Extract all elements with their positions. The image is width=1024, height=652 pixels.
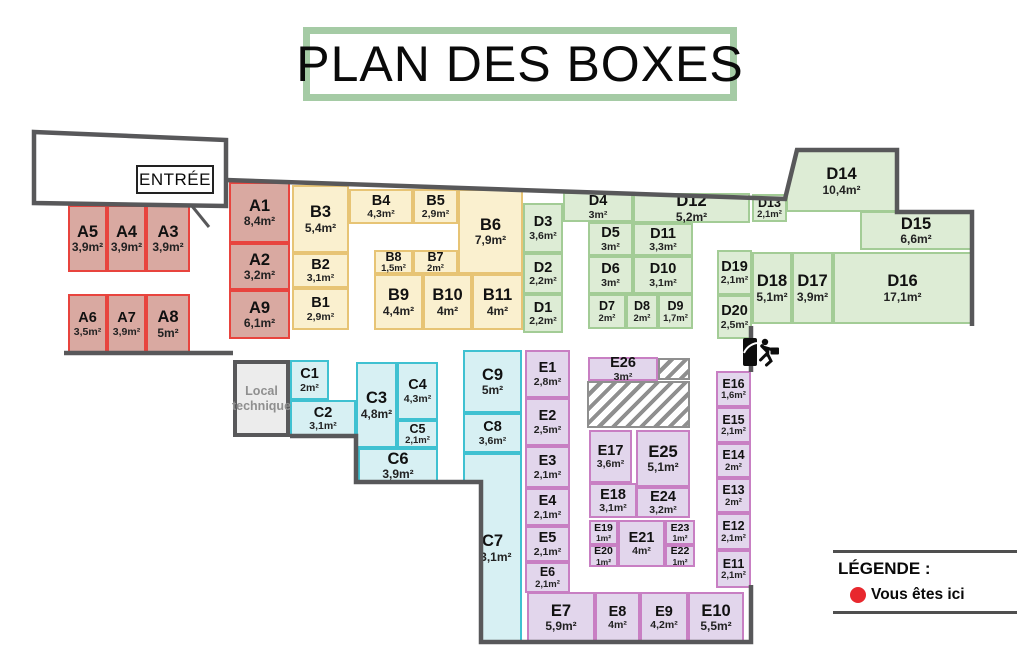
box-area: 17,1m² — [883, 291, 921, 303]
box-id: D14 — [826, 166, 856, 183]
entrance-label-text: ENTRÉE — [139, 170, 211, 190]
box-area: 1,7m² — [663, 314, 688, 324]
box-id: D7 — [599, 300, 615, 313]
box-A1: A18,4m² — [229, 182, 290, 243]
box-E19: E191m² — [589, 520, 618, 545]
box-area: 3m² — [601, 242, 620, 253]
box-id: C5 — [410, 423, 426, 436]
box-id: E13 — [722, 484, 744, 497]
box-D1: D12,2m² — [523, 294, 563, 333]
box-A5: A53,9m² — [68, 205, 107, 272]
box-area: 3,1m² — [307, 273, 334, 284]
box-id: A8 — [157, 309, 178, 326]
box-C5: C52,1m² — [397, 420, 438, 448]
box-id: B8 — [386, 251, 402, 264]
legend: LÉGENDE : Vous êtes ici — [828, 550, 1020, 622]
box-id: B5 — [426, 194, 445, 209]
box-B6: B67,9m² — [458, 189, 523, 274]
box-id: A2 — [249, 252, 270, 269]
box-B11: B114m² — [472, 274, 523, 330]
box-id: A3 — [157, 224, 178, 241]
you-are-here-dot-icon — [850, 587, 866, 603]
box-area: 2,2m² — [529, 276, 556, 287]
box-D12: D125,2m² — [633, 193, 750, 223]
box-E12: E122,1m² — [716, 513, 751, 550]
box-id: D20 — [721, 304, 748, 319]
box-B3: B35,4m² — [292, 185, 349, 253]
box-D16: D1617,1m² — [833, 252, 972, 324]
box-B4: B44,3m² — [349, 189, 413, 224]
box-D15: D156,6m² — [860, 211, 972, 250]
box-D11: D113,3m² — [633, 223, 693, 256]
box-A8: A85m² — [146, 294, 190, 354]
box-area: 2,1m² — [534, 470, 561, 481]
box-id: E23 — [671, 523, 690, 534]
box-id: E1 — [539, 361, 557, 376]
box-area: 3,9m² — [111, 241, 142, 253]
box-C4: C44,3m² — [397, 362, 438, 420]
box-id: D5 — [601, 226, 620, 241]
box-D3: D33,6m² — [523, 203, 563, 253]
box-C3: C34,8m² — [356, 362, 397, 448]
box-id: E7 — [551, 603, 571, 620]
box-E9: E94,2m² — [640, 592, 688, 643]
box-area: 3,6m² — [597, 459, 624, 470]
hatched-area — [658, 358, 690, 380]
box-id: A1 — [249, 198, 270, 215]
box-id: B10 — [432, 287, 462, 304]
box-id: D6 — [601, 262, 620, 277]
box-E11: E112,1m² — [716, 550, 751, 588]
box-id: B1 — [311, 296, 330, 311]
box-area: 1m² — [672, 558, 687, 567]
box-id: C6 — [387, 451, 408, 468]
box-area: 1m² — [596, 534, 611, 543]
box-E15: E152,1m² — [716, 407, 751, 443]
box-D7: D72m² — [588, 294, 626, 329]
box-id: D9 — [668, 300, 684, 313]
box-E3: E32,1m² — [525, 446, 570, 488]
box-area: 3,2m² — [244, 269, 275, 281]
box-area: 4m² — [632, 546, 651, 557]
box-id: E8 — [609, 605, 627, 620]
box-area: 4,3m² — [367, 209, 394, 220]
emergency-exit-icon — [741, 333, 781, 371]
box-E13: E132m² — [716, 478, 751, 513]
box-E22: E221m² — [665, 545, 695, 567]
box-area: 13,1m² — [473, 551, 511, 563]
box-id: B11 — [483, 287, 512, 304]
local-technique-room: Local technique — [233, 360, 290, 437]
box-area: 3,5m² — [74, 327, 101, 338]
page-title-text: PLAN DES BOXES — [296, 35, 744, 93]
box-area: 2,2m² — [529, 316, 556, 327]
box-id: A5 — [77, 224, 98, 241]
box-area: 5m² — [482, 384, 503, 396]
box-E17: E173,6m² — [589, 430, 632, 483]
box-id: E20 — [594, 546, 613, 557]
box-id: D1 — [534, 301, 553, 316]
box-area: 2m² — [300, 383, 319, 394]
legend-title: LÉGENDE : — [838, 559, 931, 579]
box-id: E9 — [655, 605, 673, 620]
box-id: E5 — [539, 531, 557, 546]
box-C8: C83,6m² — [463, 413, 522, 453]
box-E8: E84m² — [595, 592, 640, 643]
hatched-area — [587, 381, 690, 428]
box-id: B6 — [480, 217, 501, 234]
box-B10: B104m² — [423, 274, 472, 330]
box-E2: E22,5m² — [525, 398, 570, 446]
box-area: 3m² — [589, 210, 608, 221]
box-area: 2,1m² — [534, 510, 561, 521]
box-E5: E52,1m² — [525, 526, 570, 562]
box-C1: C12m² — [290, 360, 329, 400]
box-B5: B52,9m² — [413, 189, 458, 224]
box-C6: C63,9m² — [358, 448, 438, 483]
box-area: 5,1m² — [647, 461, 678, 473]
box-id: C8 — [483, 420, 502, 435]
box-area: 5,9m² — [545, 620, 576, 632]
box-id: D2 — [534, 261, 553, 276]
box-A3: A33,9m² — [146, 205, 190, 272]
box-area: 4m² — [487, 305, 508, 317]
box-B7: B72m² — [413, 250, 458, 274]
box-area: 2m² — [634, 314, 651, 324]
box-D9: D91,7m² — [658, 294, 693, 329]
page-title: PLAN DES BOXES — [303, 27, 737, 101]
legend-top-rule — [833, 550, 1017, 553]
box-A7: A73,9m² — [107, 294, 146, 354]
box-area: 2m² — [427, 264, 444, 274]
box-id: E21 — [629, 531, 655, 546]
box-id: E11 — [723, 558, 745, 571]
box-id: C7 — [482, 533, 503, 550]
box-id: E16 — [722, 378, 744, 391]
box-area: 2,5m² — [721, 320, 748, 331]
box-area: 8,4m² — [244, 215, 275, 227]
box-id: D16 — [887, 273, 917, 290]
box-A2: A23,2m² — [229, 243, 290, 290]
box-E10: E105,5m² — [688, 592, 744, 643]
box-D17: D173,9m² — [792, 252, 833, 324]
box-id: D4 — [589, 194, 608, 209]
box-area: 3m² — [601, 278, 620, 289]
box-area: 2,1m² — [721, 571, 746, 581]
box-area: 5,1m² — [756, 291, 787, 303]
legend-bottom-rule — [833, 611, 1017, 614]
box-id: E6 — [540, 566, 555, 579]
box-id: E17 — [598, 444, 624, 459]
box-D4: D43m² — [563, 192, 633, 222]
box-area: 2,9m² — [307, 312, 334, 323]
box-E4: E42,1m² — [525, 488, 570, 526]
box-E1: E12,8m² — [525, 350, 570, 398]
box-area: 2,1m² — [405, 436, 430, 446]
box-area: 2,8m² — [534, 377, 561, 388]
box-E14: E142m² — [716, 443, 751, 478]
box-area: 3,9m² — [382, 468, 413, 480]
box-D6: D63m² — [588, 256, 633, 294]
box-id: C4 — [408, 378, 427, 393]
box-id: D18 — [757, 273, 787, 290]
box-area: 3,9m² — [797, 291, 828, 303]
box-id: D11 — [650, 227, 676, 242]
box-area: 3,6m² — [479, 436, 506, 447]
legend-item-label: Vous êtes ici — [871, 586, 965, 604]
box-id: B2 — [311, 258, 330, 273]
box-D19: D192,1m² — [717, 250, 752, 295]
box-E24: E243,2m² — [636, 487, 690, 518]
box-B1: B12,9m² — [292, 288, 349, 330]
box-id: B4 — [372, 194, 391, 209]
box-area: 2,1m² — [757, 210, 782, 220]
box-area: 5,2m² — [676, 211, 707, 223]
box-area: 2,9m² — [422, 209, 449, 220]
box-E25: E255,1m² — [636, 430, 690, 487]
local-technique-label-1: Local — [245, 384, 278, 398]
box-B2: B23,1m² — [292, 253, 349, 288]
door-swing-line — [192, 206, 209, 227]
box-E26: E263m² — [588, 357, 658, 381]
box-id: C9 — [482, 367, 503, 384]
box-E21: E214m² — [618, 520, 665, 567]
box-id: E14 — [722, 449, 744, 462]
box-area: 2,1m² — [721, 534, 746, 544]
box-area: 2,1m² — [535, 580, 560, 590]
box-E7: E75,9m² — [527, 592, 595, 643]
box-area: 1,6m² — [721, 391, 746, 401]
box-id: C1 — [300, 367, 319, 382]
box-B8: B81,5m² — [374, 250, 413, 274]
box-id: D17 — [797, 273, 827, 290]
box-area: 3,1m² — [309, 421, 336, 432]
box-area: 3,9m² — [72, 241, 103, 253]
box-E16: E161,6m² — [716, 371, 751, 407]
entrance-label: ENTRÉE — [136, 165, 214, 194]
box-area: 2,1m² — [721, 427, 746, 437]
box-id: A6 — [78, 311, 97, 326]
box-area: 6,6m² — [900, 233, 931, 245]
box-A6: A63,5m² — [68, 294, 107, 354]
box-area: 7,9m² — [475, 234, 506, 246]
box-id: E26 — [610, 356, 636, 371]
box-E20: E201m² — [589, 545, 618, 567]
box-C7: C713,1m² — [463, 453, 522, 643]
box-area: 2m² — [725, 498, 742, 508]
box-id: E12 — [722, 520, 744, 533]
legend-item: Vous êtes ici — [850, 586, 965, 604]
box-area: 1m² — [596, 558, 611, 567]
box-D5: D53m² — [588, 222, 633, 256]
box-id: B7 — [428, 251, 444, 264]
box-D18: D185,1m² — [752, 252, 792, 324]
box-id: D13 — [758, 197, 781, 210]
box-E23: E231m² — [665, 520, 695, 545]
box-area: 5,4m² — [305, 222, 336, 234]
box-id: D10 — [650, 262, 677, 277]
box-id: D19 — [721, 260, 748, 275]
box-area: 4m² — [437, 305, 458, 317]
box-area: 6,1m² — [244, 317, 275, 329]
box-area: 3,1m² — [649, 278, 676, 289]
box-id: E3 — [539, 454, 557, 469]
box-id: E4 — [539, 494, 557, 509]
box-id: B3 — [310, 204, 331, 221]
box-D10: D103,1m² — [633, 256, 693, 294]
box-area: 3,9m² — [152, 241, 183, 253]
box-area: 3,6m² — [529, 231, 556, 242]
box-A9: A96,1m² — [229, 290, 290, 339]
box-area: 5,5m² — [700, 620, 731, 632]
box-C9: C95m² — [463, 350, 522, 413]
box-area: 1,5m² — [381, 264, 406, 274]
box-id: A9 — [249, 300, 270, 317]
box-area: 2m² — [599, 314, 616, 324]
box-area: 5m² — [157, 327, 178, 339]
box-B9: B94,4m² — [374, 274, 423, 330]
box-area: 4,4m² — [383, 305, 414, 317]
box-D2: D22,2m² — [523, 253, 563, 294]
local-technique-label-2: technique — [232, 399, 291, 413]
box-area: 2m² — [725, 463, 742, 473]
box-id: A7 — [117, 311, 136, 326]
box-E6: E62,1m² — [525, 562, 570, 593]
box-id: B9 — [388, 287, 409, 304]
box-id: D15 — [901, 216, 931, 233]
box-id: E18 — [600, 488, 626, 503]
box-id: D3 — [534, 215, 553, 230]
box-area: 3,1m² — [599, 503, 626, 514]
box-id: E24 — [650, 490, 676, 505]
box-area: 4,2m² — [650, 620, 677, 631]
box-id: C2 — [314, 406, 333, 421]
box-area: 2,1m² — [534, 547, 561, 558]
box-id: E15 — [722, 414, 744, 427]
floor-plan: PLAN DES BOXES A18,4m²A23,2m²A33,9m²A43,… — [0, 0, 1024, 652]
box-C2: C23,1m² — [290, 400, 356, 437]
box-area: 4m² — [608, 620, 627, 631]
box-id: D12 — [676, 193, 706, 210]
box-area: 3,9m² — [113, 327, 140, 338]
box-area: 4,8m² — [361, 408, 392, 420]
box-id: D8 — [634, 300, 650, 313]
box-id: A4 — [116, 224, 137, 241]
box-area: 3,3m² — [649, 242, 676, 253]
box-E18: E183,1m² — [589, 483, 637, 518]
box-area: 2,5m² — [534, 425, 561, 436]
box-id: E19 — [594, 523, 613, 534]
box-area: 4,3m² — [404, 394, 431, 405]
box-area: 2,1m² — [721, 275, 748, 286]
box-D13: D132,1m² — [752, 194, 787, 222]
box-area: 1m² — [672, 534, 687, 543]
box-D8: D82m² — [626, 294, 658, 329]
box-id: E22 — [671, 546, 690, 557]
box-id: C3 — [366, 390, 387, 407]
box-id: E2 — [539, 409, 557, 424]
box-D14: D1410,4m² — [786, 150, 897, 212]
box-A4: A43,9m² — [107, 205, 146, 272]
box-area: 3,2m² — [649, 505, 676, 516]
box-id: E25 — [648, 444, 677, 461]
box-area: 10,4m² — [822, 184, 860, 196]
box-id: E10 — [701, 603, 730, 620]
